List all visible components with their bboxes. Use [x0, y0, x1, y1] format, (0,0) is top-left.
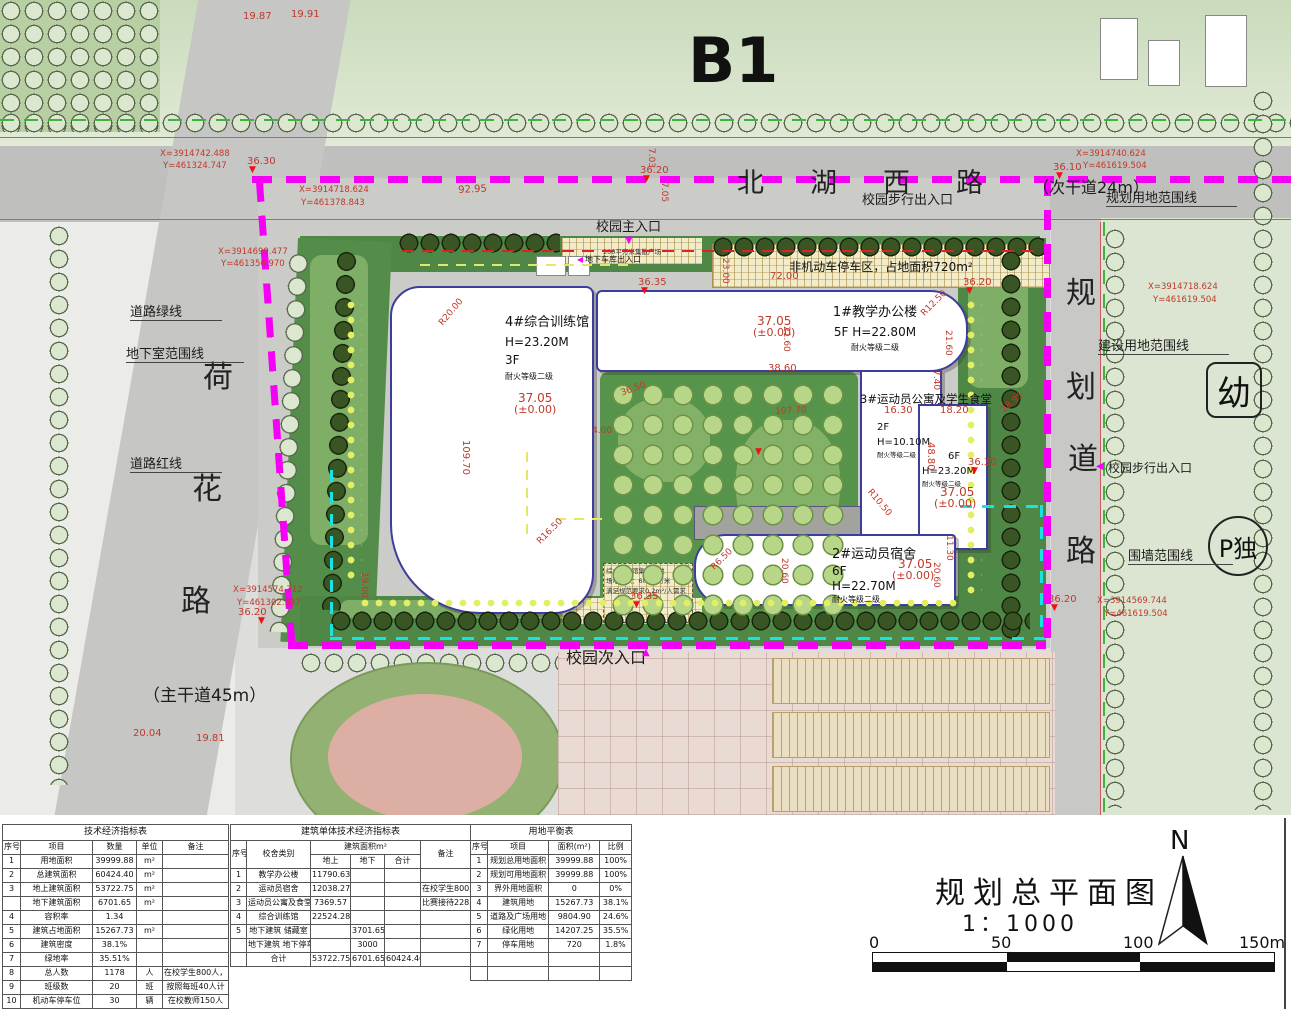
table-cell: 39999.88	[549, 869, 600, 883]
table-row: 4容积率1.34	[3, 911, 229, 925]
drawing-scale: 1：1000	[962, 906, 1078, 938]
plan-annotation: ▼	[971, 467, 978, 476]
plan-annotation: 校园次入口	[566, 650, 646, 667]
table-cell: 4	[3, 911, 21, 925]
table-cell: m²	[137, 883, 163, 897]
table-cell	[421, 869, 471, 883]
table-cell: 53722.75	[311, 953, 351, 967]
table-cell: 地下建筑面积	[21, 897, 93, 911]
table-cell: 35.51%	[93, 953, 137, 967]
basement-boundary	[526, 452, 528, 538]
plan-annotation: 72.00	[770, 272, 799, 283]
street-trees-east	[1104, 228, 1128, 808]
plan-drawing: 200平方米集散广场 非机动车停车区，占地面积720m² 200平方米集散广场 …	[0, 0, 1291, 815]
table-cell: m²	[137, 869, 163, 883]
plan-annotation: 16.30	[884, 406, 913, 417]
table-cell: 地上建筑面积	[21, 883, 93, 897]
table-row: 1用地面积39999.88m²	[3, 855, 229, 869]
shrub-dots	[966, 300, 982, 600]
table-row: 2运动员宿舍12038.27在校学生800人	[231, 883, 471, 897]
plan-annotation: 围墙范围线	[1128, 550, 1233, 565]
column-header: 单位	[137, 841, 163, 855]
column-header: 校舍类别	[247, 841, 311, 869]
plan-annotation: X=3914718.624	[1148, 283, 1218, 292]
plan-annotation: 划	[1066, 372, 1096, 404]
building-line: 耐火等级二级	[505, 373, 589, 381]
table-cell: 3	[3, 883, 21, 897]
shrub-dots	[346, 300, 362, 580]
plan-annotation: X=3914742.488	[160, 150, 230, 159]
street-trees-far-east	[1252, 90, 1276, 810]
plan-annotation: ▼	[755, 448, 762, 457]
parking-stalls	[772, 766, 1050, 812]
plan-annotation: ▼	[643, 175, 650, 184]
wall-boundary	[1040, 505, 1043, 640]
utility-box	[536, 256, 566, 276]
building-line: 2F	[877, 423, 930, 434]
plan-annotation: 7.05	[659, 182, 668, 202]
table-cell: 2	[231, 883, 247, 897]
table-cell: 容积率	[21, 911, 93, 925]
table-cell: 9	[3, 981, 21, 995]
plan-annotation: 校园步行出入口	[1108, 462, 1192, 475]
column-header: 备注	[421, 841, 471, 869]
scale-segment	[1007, 953, 1141, 962]
table-cell: m²	[137, 855, 163, 869]
table-cell	[351, 897, 385, 911]
plan-annotation: 20.04	[133, 729, 162, 740]
table-cell: 3000	[351, 939, 385, 953]
table-cell	[163, 897, 229, 911]
table-cell	[163, 925, 229, 939]
table-cell: 1178	[93, 967, 137, 981]
table-row: 7停车用地7201.8%	[471, 939, 632, 953]
table-cell: 总人数	[21, 967, 93, 981]
plan-annotation: X=3914574.712	[233, 586, 303, 595]
table-cell: 6701.65	[351, 953, 385, 967]
table-cell: 建筑占地面积	[21, 925, 93, 939]
table-cell: 38.1%	[93, 939, 137, 953]
table-cell	[421, 925, 471, 939]
table-row	[471, 967, 632, 981]
table-cell	[163, 911, 229, 925]
table-cell: 20	[93, 981, 137, 995]
table-cell	[137, 939, 163, 953]
table-cell: 停车用地	[487, 939, 548, 953]
plan-annotation: 20.60	[779, 558, 788, 584]
building-line: H=10.10M	[877, 438, 930, 449]
scale-tick: 50	[991, 933, 1011, 952]
column-header: 备注	[163, 841, 229, 855]
table-cell: 机动车停车位	[21, 995, 93, 1009]
column-header: 序号	[3, 841, 21, 855]
table-cell: 3701.65	[351, 925, 385, 939]
plan-annotation: 18.20	[940, 406, 969, 417]
plan-annotation: 路	[181, 586, 211, 618]
street-trees-west	[48, 225, 72, 785]
table-cell	[163, 869, 229, 883]
plan-annotation: 荷	[203, 362, 233, 394]
plan-annotation: Y=461619.504	[1153, 296, 1217, 305]
table-title: 建筑单体技术经济指标表	[231, 825, 471, 841]
street-trees-north	[0, 112, 1291, 136]
table-cell	[385, 897, 421, 911]
table-cell: 辆	[137, 995, 163, 1009]
table-row: 3界外用地面积00%	[471, 883, 632, 897]
table-cell: 规划可用地面积	[487, 869, 548, 883]
planning-boundary-south	[288, 642, 1046, 649]
building-line: H=23.20M	[505, 336, 589, 349]
table-cell: 1	[231, 869, 247, 883]
road-greenline	[1103, 222, 1105, 815]
table-cell: 道路及广场用地	[487, 911, 548, 925]
table-row: 1教学办公楼11790.63	[231, 869, 471, 883]
plan-annotation: ▼	[249, 166, 256, 175]
table-cell: 15267.73	[549, 897, 600, 911]
scale-tick: 0	[869, 933, 879, 952]
table-cell	[600, 953, 632, 967]
table-cell: 规划总用地面积	[487, 855, 548, 869]
table-cell: 3	[231, 897, 247, 911]
table-row: 1规划总用地面积39999.88100%	[471, 855, 632, 869]
table-cell: 3	[471, 883, 488, 897]
table-cell	[385, 911, 421, 925]
plan-annotation: (±0.00)	[892, 570, 934, 582]
sheet-frame-line	[1284, 818, 1286, 1009]
table-row: 4建筑用地15267.7338.1%	[471, 897, 632, 911]
table-cell	[231, 953, 247, 967]
column-header: 地上	[311, 855, 351, 869]
table-cell: 4	[471, 897, 488, 911]
kindergarten-label: 幼	[1217, 366, 1251, 415]
land-balance-table: 用地平衡表 序号 项目 面积(m²) 比例 1规划总用地面积39999.8810…	[470, 824, 632, 981]
scale-bar: 0 50 100 150m	[872, 952, 1275, 972]
plan-annotation: 4.00	[592, 427, 612, 436]
table-cell: 综合训练馆	[247, 911, 311, 925]
plan-annotation: ◀	[1096, 462, 1104, 473]
table-cell: 7369.57	[311, 897, 351, 911]
table-cell	[163, 953, 229, 967]
plan-annotation: 92.95	[458, 185, 487, 197]
table-row: 6建筑密度38.1%	[3, 939, 229, 953]
offsite-building	[1205, 15, 1247, 87]
table-row: 4综合训练馆22524.28	[231, 911, 471, 925]
table-row: 2规划可用地面积39999.88100%	[471, 869, 632, 883]
plan-annotation: ◀	[577, 256, 583, 264]
table-row: 2总建筑面积60424.40m²	[3, 869, 229, 883]
table-row: 3运动员公寓及食堂7369.57比赛接待228人	[231, 897, 471, 911]
building-line: 耐火等级二级	[832, 596, 916, 604]
table-cell: 在校学生800人，比赛228人	[163, 967, 229, 981]
column-header: 建筑面积m²	[311, 841, 421, 855]
table-cell	[3, 897, 21, 911]
table-row: 5建筑占地面积15267.73m²	[3, 925, 229, 939]
column-header: 项目	[21, 841, 93, 855]
plan-annotation: ▼	[633, 601, 640, 610]
table-cell: 0	[549, 883, 600, 897]
plan-annotation: 花	[192, 474, 222, 506]
table-cell: 38.1%	[600, 897, 632, 911]
plan-annotation: 道路红线	[130, 458, 222, 473]
table-cell: 2	[3, 869, 21, 883]
road-greenline	[0, 119, 1291, 121]
table-cell	[163, 883, 229, 897]
table-cell	[163, 855, 229, 869]
plan-annotation: ▼	[1051, 604, 1058, 613]
table-cell: 11790.63	[311, 869, 351, 883]
table-cell: 60424.40	[385, 953, 421, 967]
nonmotor-parking-label: 非机动车停车区，占地面积720m²	[789, 258, 972, 275]
table-cell: 14207.25	[549, 925, 600, 939]
table-cell: 35.5%	[600, 925, 632, 939]
plan-annotation: Y=461356.970	[221, 260, 285, 269]
table-cell: 建筑用地	[487, 897, 548, 911]
courtyard-trees	[610, 382, 848, 618]
building-line: 5F H=22.80M	[790, 326, 960, 339]
table-cell: 6	[471, 925, 488, 939]
plan-annotation: (±0.00)	[934, 498, 976, 510]
plan-annotation: 规划用地范围线	[1106, 192, 1237, 207]
table-row: 6绿化用地14207.2535.5%	[471, 925, 632, 939]
table-cell: 在校教师150人	[163, 995, 229, 1009]
table-cell: 班	[137, 981, 163, 995]
column-header: 面积(m²)	[549, 841, 600, 855]
table-cell: 运动员公寓及食堂	[247, 897, 311, 911]
building-line: H=22.70M	[832, 580, 916, 593]
plan-annotation: Y=461619.504	[1083, 162, 1147, 171]
wall-boundary	[330, 470, 333, 640]
table-cell: 22524.28	[311, 911, 351, 925]
table-cell: 比赛接待228人	[421, 897, 471, 911]
table-cell: 用地面积	[21, 855, 93, 869]
plan-annotation: 48.80	[925, 442, 936, 471]
table-cell: 12038.27	[311, 883, 351, 897]
table-title: 技术经济指标表	[3, 825, 229, 841]
road-redline	[1100, 222, 1101, 815]
table-cell: 地下建筑 地下停车	[247, 939, 311, 953]
parking-stalls	[772, 712, 1050, 758]
plan-annotation: 校园步行出入口	[862, 194, 953, 208]
table-cell: 720	[549, 939, 600, 953]
table-cell: 运动员宿舍	[247, 883, 311, 897]
planning-boundary-east	[1044, 176, 1051, 648]
building-3-label: 3#运动员公寓及学生食堂	[860, 393, 992, 405]
drawing-info-panel: 技术经济指标表 序号 项目 数量 单位 备注 1用地面积39999.88m²2总…	[0, 815, 1291, 1009]
plan-annotation: 107.70	[775, 406, 807, 417]
table-cell	[351, 883, 385, 897]
table-cell	[549, 967, 600, 981]
table-cell	[351, 911, 385, 925]
column-header: 序号	[471, 841, 488, 855]
plan-annotation: Y=461619.504	[1104, 610, 1168, 619]
table-cell	[137, 911, 163, 925]
scale-segment	[1140, 953, 1274, 962]
table-cell	[385, 925, 421, 939]
table-cell: 100%	[600, 855, 632, 869]
table-cell: 9804.90	[549, 911, 600, 925]
plan-annotation: 21.60	[781, 326, 790, 352]
site-trees-north	[712, 236, 1044, 259]
table-cell	[385, 939, 421, 953]
construction-boundary	[402, 250, 1042, 252]
site-plan-sheet: 200平方米集散广场 非机动车停车区，占地面积720m² 200平方米集散广场 …	[0, 0, 1291, 1009]
plan-annotation: X=3914699.477	[218, 248, 288, 257]
offsite-building	[1100, 18, 1138, 80]
table-cell: 10	[3, 995, 21, 1009]
plan-annotation: Y=461324.747	[163, 162, 227, 171]
table-cell: 60424.40	[93, 869, 137, 883]
plan-annotation: 道路绿线	[130, 306, 222, 321]
table-row: 地下建筑面积6701.65m²	[3, 897, 229, 911]
scale-tick: 150m	[1239, 933, 1285, 952]
kindergarten-badge: 幼	[1206, 362, 1262, 418]
table-cell	[311, 925, 351, 939]
table-row: 3地上建筑面积53722.75m²	[3, 883, 229, 897]
scale-segment	[873, 962, 1007, 971]
plan-annotation: 21.60	[943, 330, 952, 356]
plan-annotation: 23.00	[720, 258, 729, 284]
table-cell	[385, 883, 421, 897]
building-title: 3#运动员公寓及学生食堂	[860, 392, 992, 406]
column-header: 比例	[600, 841, 632, 855]
table-cell: 4	[231, 911, 247, 925]
table-row: 5地下建筑 储藏室3701.65	[231, 925, 471, 939]
basement-boundary	[556, 518, 602, 520]
north-label: N	[1170, 826, 1189, 856]
building-title: 4#综合训练馆	[505, 316, 589, 330]
plan-annotation: 地下车库出入口	[585, 256, 641, 264]
table-row	[471, 953, 632, 967]
plan-annotation: ▲	[642, 648, 650, 659]
plan-annotation: ▼	[625, 236, 633, 247]
table-cell	[421, 953, 471, 967]
parking-stalls	[772, 658, 1050, 704]
table-cell: 1	[471, 855, 488, 869]
plan-annotation: ▼	[641, 287, 648, 296]
column-header: 序号	[231, 841, 247, 869]
plan-annotation: 19.87	[243, 12, 272, 23]
plan-annotation: Y=461378.843	[301, 199, 365, 208]
plan-annotation: ▼	[258, 617, 265, 626]
plan-annotation: (±0.00)	[514, 404, 556, 416]
plan-annotation: X=3914740.624	[1076, 150, 1146, 159]
plan-annotation: X=3914718.624	[299, 186, 369, 195]
table-cell	[231, 939, 247, 953]
plan-annotation: X=3914569.744	[1097, 597, 1167, 606]
plan-annotation: 路	[1066, 536, 1096, 568]
plan-annotation: 7.40	[931, 370, 940, 390]
plan-annotation: 道	[1068, 444, 1098, 476]
plan-annotation: 19.91	[291, 10, 320, 21]
table-cell: 100%	[600, 869, 632, 883]
scale-segment	[873, 953, 1007, 962]
table-cell: 按照每班40人计	[163, 981, 229, 995]
table-cell	[137, 953, 163, 967]
table-row: 9班级数20班按照每班40人计	[3, 981, 229, 995]
table-cell: 人	[137, 967, 163, 981]
wall-boundary	[330, 637, 1046, 640]
building-line: 3F	[505, 354, 589, 367]
plan-annotation: 109.70	[460, 440, 471, 475]
table-cell: 7	[3, 953, 21, 967]
column-header: 数量	[93, 841, 137, 855]
table-cell: 39999.88	[93, 855, 137, 869]
table-cell: 界外用地面积	[487, 883, 548, 897]
table-cell	[421, 939, 471, 953]
plan-annotation: 地下室范围线	[126, 348, 244, 363]
plan-annotation: 校园主入口	[596, 221, 661, 235]
table-row: 地下建筑 地下停车3000	[231, 939, 471, 953]
table-cell: 5	[231, 925, 247, 939]
table-cell: m²	[137, 925, 163, 939]
table-cell	[487, 967, 548, 981]
plan-annotation: ▼	[1056, 172, 1063, 181]
table-cell: 30	[93, 995, 137, 1009]
table-title: 用地平衡表	[471, 825, 632, 841]
plan-annotation: 规	[1066, 278, 1096, 310]
table-cell	[163, 939, 229, 953]
scale-segment	[1007, 962, 1141, 971]
stadium-field	[328, 694, 522, 815]
table-cell	[311, 939, 351, 953]
table-cell: 5	[471, 911, 488, 925]
table-cell: 8	[3, 967, 21, 981]
table-cell: 绿化用地	[487, 925, 548, 939]
table-cell: 53722.75	[93, 883, 137, 897]
plan-annotation: 19.00	[359, 572, 368, 598]
plan-annotation: 19.81	[196, 734, 225, 745]
north-arrow: N	[1138, 826, 1228, 946]
table-cell: 教学办公楼	[247, 869, 311, 883]
table-row: 合计53722.756701.6560424.40	[231, 953, 471, 967]
table-cell: 合计	[247, 953, 311, 967]
table-cell	[421, 911, 471, 925]
table-cell: 在校学生800人	[421, 883, 471, 897]
plan-annotation: 38.60	[768, 364, 797, 375]
table-cell: 24.6%	[600, 911, 632, 925]
table-cell: 39999.88	[549, 855, 600, 869]
site-trees-east	[1000, 250, 1023, 640]
building-unit-table: 建筑单体技术经济指标表 序号 校舍类别 建筑面积m² 备注 地上 地下 合计 1…	[230, 824, 471, 967]
table-row: 5道路及广场用地9804.9024.6%	[471, 911, 632, 925]
plan-annotation: （主干道45m）	[143, 688, 266, 706]
table-cell	[549, 953, 600, 967]
scale-tick: 100	[1123, 933, 1154, 952]
table-cell: 0%	[600, 883, 632, 897]
tech-economic-table: 技术经济指标表 序号 项目 数量 单位 备注 1用地面积39999.88m²2总…	[2, 824, 229, 1009]
table-cell: 5	[3, 925, 21, 939]
table-row: 7绿地率35.51%	[3, 953, 229, 967]
column-header: 地下	[351, 855, 385, 869]
building-1-label: 1#教学办公楼 5F H=22.80M 耐火等级二级	[790, 306, 960, 353]
table-cell	[471, 953, 488, 967]
table-cell: 班级数	[21, 981, 93, 995]
table-cell	[351, 869, 385, 883]
table-cell: 绿地率	[21, 953, 93, 967]
table-cell: 地下建筑 储藏室	[247, 925, 311, 939]
plan-annotation: 11.30	[944, 535, 953, 561]
table-cell: 1	[3, 855, 21, 869]
table-cell: 7	[471, 939, 488, 953]
scale-segment	[1140, 962, 1274, 971]
table-cell: 6701.65	[93, 897, 137, 911]
column-header: 项目	[487, 841, 548, 855]
table-cell: 6	[3, 939, 21, 953]
building-line: 耐火等级二级	[790, 344, 960, 352]
plan-annotation: ▼	[966, 287, 973, 296]
offsite-building	[1148, 40, 1180, 86]
building-4-label: 4#综合训练馆 H=23.20M 3F 耐火等级二级	[505, 316, 589, 381]
